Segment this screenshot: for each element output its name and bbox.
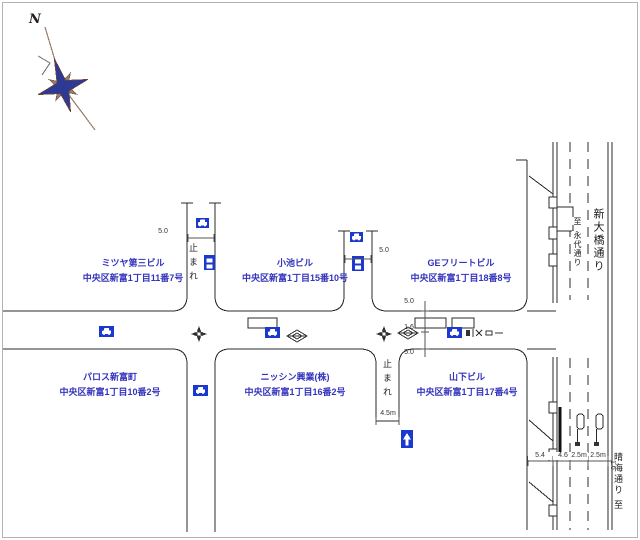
sidewalk-structure bbox=[452, 318, 474, 328]
compass-rose bbox=[29, 27, 95, 130]
destination-south-name: 晴海通り bbox=[612, 452, 625, 496]
building-address: 中央区新富1丁目16番2号 bbox=[205, 387, 385, 398]
crosswalk-diamond bbox=[287, 330, 307, 342]
intersection-cross-east bbox=[376, 326, 392, 342]
intersection-cross-west bbox=[191, 326, 207, 342]
building-name: パロス新富町 bbox=[20, 372, 200, 383]
block-top-middle-outline bbox=[215, 203, 344, 311]
building-name: 山下ビル bbox=[377, 372, 557, 383]
dim-edge: 1.6 bbox=[608, 460, 616, 470]
dim-cross-middle: 1.6 bbox=[396, 324, 422, 332]
dim-lane-east: 2.5m bbox=[589, 452, 607, 460]
road-stop-marking: 止まれ bbox=[187, 243, 200, 285]
destination-south-suffix: 至 bbox=[612, 500, 625, 511]
median-bar bbox=[559, 407, 562, 458]
avenue-name-label: 新大橋通り bbox=[590, 207, 606, 274]
roadside-structure bbox=[549, 197, 557, 208]
corner-chamfer-top bbox=[529, 176, 553, 194]
dim-street-a-width: 5.0 bbox=[148, 228, 178, 236]
traffic-sign bbox=[447, 327, 462, 338]
pole-symbol bbox=[594, 414, 603, 446]
building-name: 小池ビル bbox=[205, 258, 385, 269]
building-address: 中央区新富1丁目15番10号 bbox=[205, 273, 385, 284]
roadside-structure bbox=[549, 227, 557, 239]
traffic-sign bbox=[99, 326, 114, 337]
one-way-sign bbox=[401, 430, 413, 448]
destination-north-prefix: 至 bbox=[572, 217, 583, 225]
compass-fletching bbox=[38, 56, 50, 75]
building-address: 中央区新富1丁目18番8号 bbox=[371, 273, 551, 284]
dim-street-b-width: 5.0 bbox=[369, 247, 399, 255]
dim-cross-bottom: 5.0 bbox=[396, 349, 422, 357]
building-name: ニッシン興業(株) bbox=[205, 372, 385, 383]
small-road-symbols bbox=[466, 329, 503, 337]
dim-alley-width: 4.5m bbox=[374, 410, 402, 418]
dim-cross-top: 5.0 bbox=[396, 298, 422, 306]
building-name: GEフリートビル bbox=[371, 258, 551, 269]
sidewalk-structure bbox=[248, 318, 277, 328]
map-canvas: N ミツヤ第三ビル 中央区新富1丁目11番7号 小池ビル 中央区新富1丁目15番… bbox=[0, 0, 640, 540]
road-network bbox=[2, 142, 612, 532]
roadside-structure bbox=[549, 505, 557, 516]
compass-needle bbox=[45, 27, 95, 130]
building-address: 中央区新富1丁目17番4号 bbox=[377, 387, 557, 398]
dim-lane-center: 2.5m bbox=[570, 452, 588, 460]
dim-side-street: 5.4 bbox=[528, 452, 552, 460]
street-pole-symbols bbox=[575, 414, 603, 446]
pole-symbol bbox=[575, 414, 584, 446]
traffic-sign bbox=[265, 327, 280, 338]
building-address: 中央区新富1丁目10番2号 bbox=[20, 387, 200, 398]
destination-north-name: 永代通り bbox=[572, 231, 583, 267]
traffic-sign bbox=[196, 218, 209, 228]
traffic-sign bbox=[350, 232, 363, 242]
block-top-right-outline bbox=[372, 160, 527, 311]
block-top-left-outline bbox=[2, 203, 187, 311]
compass-star-main bbox=[29, 51, 95, 120]
roadside-structure-large bbox=[557, 207, 573, 231]
road-stop-marking: 止まれ bbox=[381, 359, 394, 401]
road-east-opening bbox=[527, 311, 556, 349]
roadside-structure bbox=[549, 402, 557, 413]
compass-north-label: N bbox=[29, 12, 41, 27]
